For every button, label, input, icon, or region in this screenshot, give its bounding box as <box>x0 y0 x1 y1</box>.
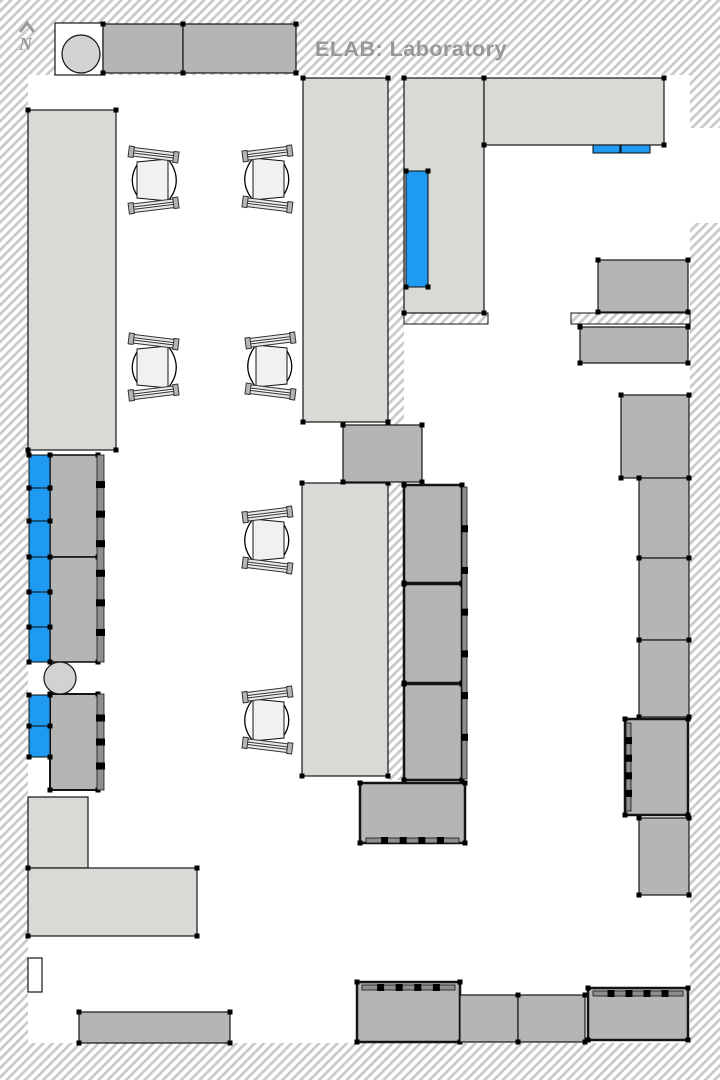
corner-mark <box>619 393 624 398</box>
connector-dash <box>396 984 403 991</box>
corner-mark <box>386 774 391 779</box>
corner-mark <box>101 22 106 27</box>
corner-mark <box>294 71 299 76</box>
corner-mark <box>114 448 119 453</box>
corner-mark <box>404 285 409 290</box>
connector-dash <box>96 715 105 722</box>
connector-dash <box>400 837 407 844</box>
corner-mark <box>48 555 53 560</box>
equipment-south-1[interactable] <box>357 982 460 1042</box>
corner-mark <box>355 980 360 985</box>
corner-mark <box>458 980 463 985</box>
corner-mark <box>27 693 32 698</box>
corner-mark <box>48 755 53 760</box>
connector-dash <box>96 763 105 770</box>
equipment-center-1[interactable] <box>404 485 462 583</box>
wall-bottom <box>0 1043 720 1080</box>
corner-mark <box>27 486 32 491</box>
connector-dash <box>461 692 468 699</box>
connector-dash <box>96 481 105 488</box>
corner-mark <box>623 813 628 818</box>
corner-mark <box>27 660 32 665</box>
room-title: ELAB: Laboratory <box>315 37 507 61</box>
connector-dash <box>644 990 651 997</box>
corner-mark <box>26 448 31 453</box>
corner-mark <box>77 1010 82 1015</box>
corner-mark <box>463 781 468 786</box>
connector-dash <box>625 790 632 797</box>
corner-mark <box>686 361 691 366</box>
equipment-right-4[interactable] <box>639 640 689 717</box>
equipment-center-south[interactable] <box>360 783 465 843</box>
connector-dash <box>461 609 468 616</box>
corner-mark <box>228 1010 233 1015</box>
equipment-right-top[interactable] <box>598 260 688 312</box>
corner-mark <box>341 423 346 428</box>
corner-mark <box>341 480 346 485</box>
wall-left <box>0 75 28 1043</box>
connector-dash <box>461 734 468 741</box>
corner-mark <box>686 1038 691 1043</box>
corner-mark <box>27 519 32 524</box>
corner-mark <box>386 420 391 425</box>
corner-mark <box>48 519 53 524</box>
wall-right-upper <box>690 75 720 128</box>
corner-mark <box>586 986 591 991</box>
wall-center-lower <box>388 483 404 780</box>
corner-mark <box>228 1041 233 1046</box>
corner-mark <box>463 841 468 846</box>
corner-mark <box>27 555 32 560</box>
stool-left[interactable] <box>44 662 76 694</box>
corner-mark <box>578 361 583 366</box>
corner-mark <box>426 169 431 174</box>
blue-unit-top-b[interactable] <box>621 145 650 153</box>
corner-mark <box>687 893 692 898</box>
corner-mark <box>637 476 642 481</box>
equipment-south-3[interactable] <box>518 995 585 1042</box>
corner-mark <box>686 325 691 330</box>
corner-mark <box>637 638 642 643</box>
equipment-left-lower[interactable] <box>50 694 98 790</box>
blue-unit-left-6[interactable] <box>29 627 50 662</box>
connector-dash <box>96 739 105 746</box>
corner-mark <box>402 483 407 488</box>
corner-mark <box>48 486 53 491</box>
connector-dash <box>433 984 440 991</box>
corner-mark <box>586 1038 591 1043</box>
corner-mark <box>404 169 409 174</box>
corner-mark <box>358 781 363 786</box>
corner-mark <box>402 682 407 687</box>
corner-mark <box>686 310 691 315</box>
corner-mark <box>300 774 305 779</box>
corner-mark <box>77 1041 82 1046</box>
blue-unit-left-4[interactable] <box>29 557 50 592</box>
connector-dash <box>96 599 105 606</box>
blue-unit-left-7[interactable] <box>29 695 50 726</box>
connector-dash <box>377 984 384 991</box>
corner-mark <box>27 625 32 630</box>
equipment-south-1-strip <box>362 985 455 990</box>
chair-6[interactable] <box>242 686 293 754</box>
ledge-center <box>404 313 488 324</box>
corner-mark <box>420 423 425 428</box>
connector-dash <box>625 755 632 762</box>
equipment-right-1[interactable] <box>621 395 689 478</box>
corner-mark <box>26 108 31 113</box>
equipment-southwest[interactable] <box>79 1012 230 1043</box>
corner-mark <box>27 755 32 760</box>
corner-mark <box>686 986 691 991</box>
equipment-right-3[interactable] <box>639 558 689 640</box>
corner-mark <box>662 76 667 81</box>
equipment-right-ledge-block[interactable] <box>580 327 688 363</box>
corner-mark <box>27 724 32 729</box>
corner-mark <box>426 285 431 290</box>
corner-mark <box>596 258 601 263</box>
blue-unit-left-3[interactable] <box>29 521 50 557</box>
corner-mark <box>482 311 487 316</box>
connector-dash <box>381 837 388 844</box>
corner-mark <box>687 476 692 481</box>
bench-southwest-strip[interactable] <box>28 797 88 868</box>
cabinet-top-2[interactable] <box>183 24 296 73</box>
wall-right-main <box>690 223 720 1043</box>
corner-mark <box>516 993 521 998</box>
corner-mark <box>596 310 601 315</box>
corner-mark <box>48 693 53 698</box>
stool-top[interactable] <box>62 35 100 73</box>
corner-mark <box>195 934 200 939</box>
bench-top-horizontal[interactable] <box>484 78 664 145</box>
corner-mark <box>619 476 624 481</box>
corner-mark <box>482 143 487 148</box>
wall-center-upper <box>388 75 404 425</box>
connector-dash <box>461 650 468 657</box>
corner-mark <box>516 1040 521 1045</box>
connector-dash <box>96 629 105 636</box>
equipment-left-middle[interactable] <box>50 557 98 662</box>
equipment-center-south-strip <box>366 838 459 843</box>
corner-mark <box>27 453 32 458</box>
corner-mark <box>101 71 106 76</box>
connector-dash <box>96 511 105 518</box>
corner-mark <box>687 638 692 643</box>
connector-dash <box>96 570 105 577</box>
bench-southwest[interactable] <box>28 868 197 936</box>
equipment-right-5[interactable] <box>625 719 688 815</box>
bench-left[interactable] <box>28 110 116 450</box>
corner-mark <box>301 420 306 425</box>
corner-mark <box>300 481 305 486</box>
corner-mark <box>482 76 487 81</box>
equipment-south-4-strip <box>593 991 683 996</box>
corner-mark <box>578 325 583 330</box>
connector-dash <box>626 990 633 997</box>
corner-mark <box>686 258 691 263</box>
corner-mark <box>662 143 667 148</box>
connector-dash <box>96 540 105 547</box>
connector-dash <box>662 990 669 997</box>
floorplan-canvas: N ELAB: Laboratory <box>0 0 720 1080</box>
corner-mark <box>386 76 391 81</box>
corner-mark <box>623 717 628 722</box>
corner-mark <box>26 866 31 871</box>
blue-unit-bench-east[interactable] <box>406 171 428 287</box>
corner-mark <box>294 22 299 27</box>
corner-mark <box>358 841 363 846</box>
wall-notch-lower <box>28 958 42 992</box>
blue-unit-top-a[interactable] <box>593 145 620 153</box>
connector-dash <box>625 737 632 744</box>
connector-dash <box>461 567 468 574</box>
blue-unit-left-2[interactable] <box>29 488 50 521</box>
corner-mark <box>48 788 53 793</box>
connector-dash <box>625 772 632 779</box>
equipment-center-2[interactable] <box>404 584 462 683</box>
corner-mark <box>114 108 119 113</box>
bench-island-lower[interactable] <box>302 483 388 776</box>
corner-mark <box>402 311 407 316</box>
corner-mark <box>48 453 53 458</box>
corner-mark <box>637 556 642 561</box>
corner-mark <box>637 816 642 821</box>
corner-mark <box>355 1040 360 1045</box>
chair-3[interactable] <box>128 333 179 401</box>
corner-mark <box>301 76 306 81</box>
corner-mark <box>687 816 692 821</box>
connector-dash <box>414 984 421 991</box>
blue-unit-left-8[interactable] <box>29 726 50 757</box>
bench-island-upper[interactable] <box>303 78 388 422</box>
corner-mark <box>181 22 186 27</box>
connector-dash <box>608 990 615 997</box>
chair-5[interactable] <box>242 506 293 574</box>
equipment-right-2[interactable] <box>639 478 689 558</box>
chair-1[interactable] <box>128 146 179 214</box>
corner-mark <box>687 556 692 561</box>
blue-unit-left-5[interactable] <box>29 592 50 627</box>
blue-unit-left-1[interactable] <box>29 455 50 488</box>
corner-mark <box>195 866 200 871</box>
chair-4[interactable] <box>245 332 296 400</box>
connector-dash <box>437 837 444 844</box>
equipment-left-upper[interactable] <box>50 455 98 557</box>
corner-mark <box>48 724 53 729</box>
corner-mark <box>637 893 642 898</box>
chair-2[interactable] <box>242 145 293 213</box>
equipment-right-5-strip <box>626 723 631 811</box>
corner-mark <box>48 590 53 595</box>
connector-dash <box>418 837 425 844</box>
equipment-center-pass[interactable] <box>343 425 422 482</box>
connector-dash <box>461 525 468 532</box>
corner-mark <box>402 76 407 81</box>
corner-mark <box>686 717 691 722</box>
corner-mark <box>181 71 186 76</box>
corner-mark <box>402 582 407 587</box>
equipment-right-6[interactable] <box>639 818 689 895</box>
cabinet-top-1[interactable] <box>103 24 183 73</box>
corner-mark <box>27 590 32 595</box>
corner-mark <box>26 934 31 939</box>
corner-mark <box>48 625 53 630</box>
north-label: N <box>18 34 33 54</box>
equipment-south-2[interactable] <box>460 995 518 1042</box>
corner-mark <box>687 393 692 398</box>
equipment-center-3[interactable] <box>404 684 462 780</box>
ledge-right <box>571 313 690 324</box>
